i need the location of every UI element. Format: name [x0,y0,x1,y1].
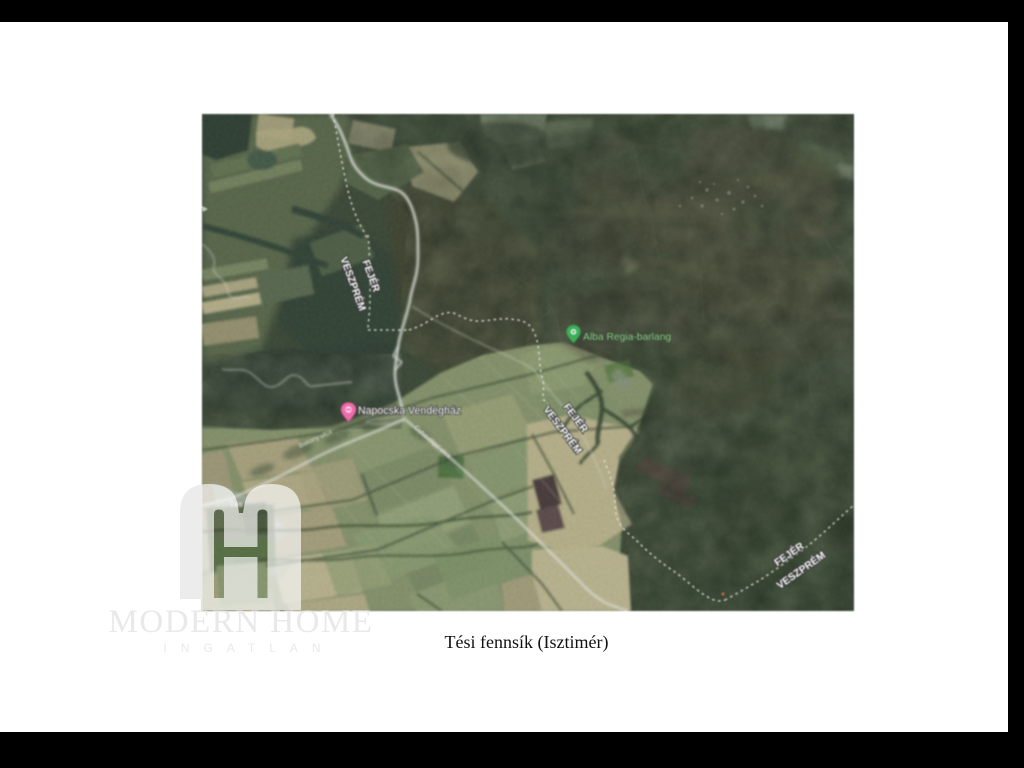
svg-text:Napocska Vendégház: Napocska Vendégház [358,405,461,417]
svg-text:Alba Regia-barlang: Alba Regia-barlang [583,332,671,343]
